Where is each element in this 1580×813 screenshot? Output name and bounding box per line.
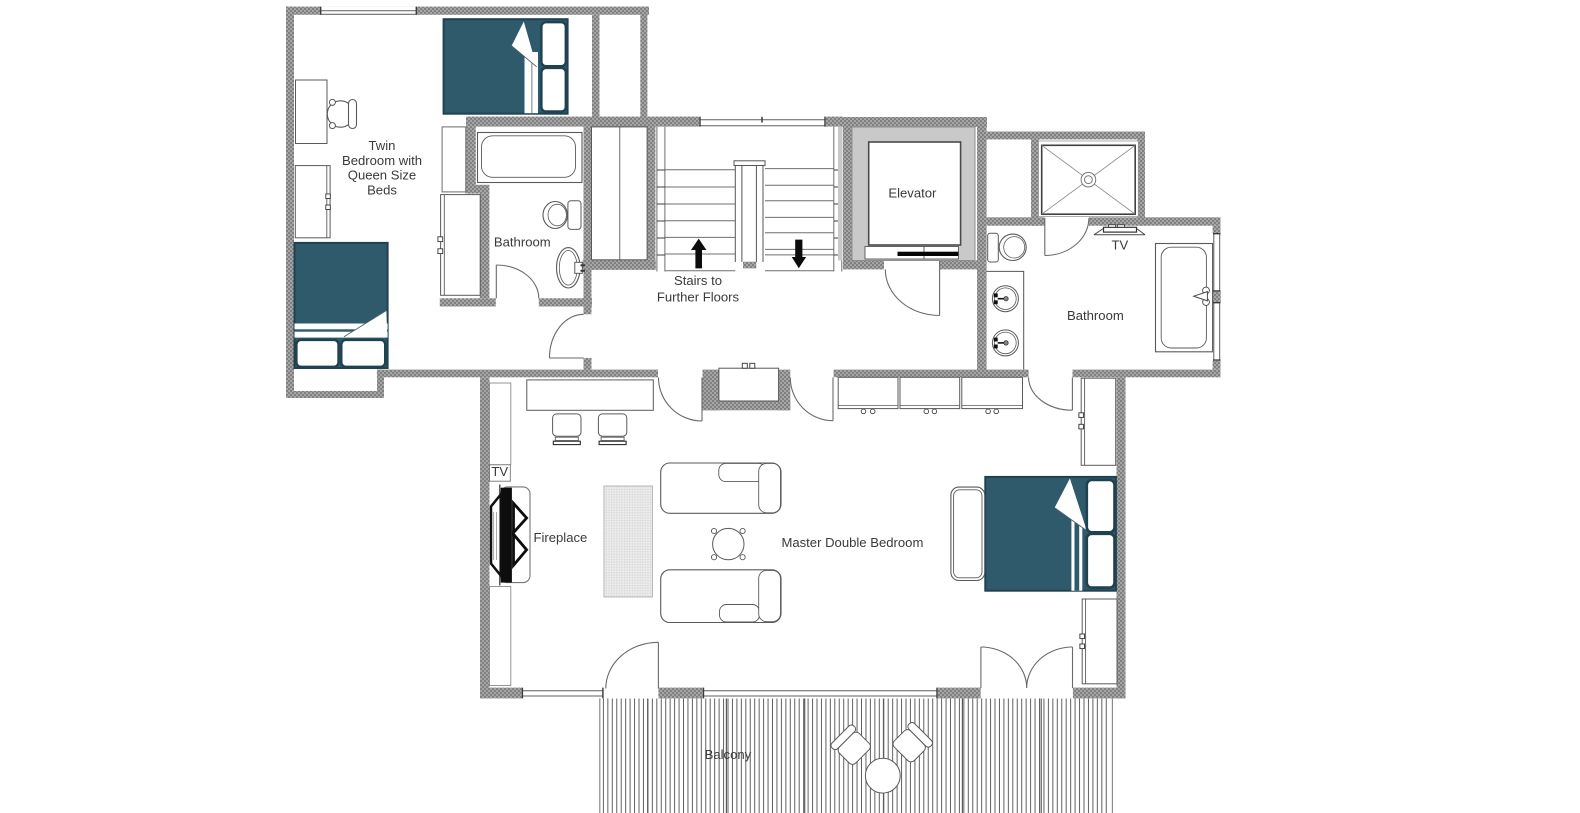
svg-text:Twin: Twin: [369, 138, 396, 153]
svg-text:Bedroom with: Bedroom with: [342, 153, 422, 168]
svg-text:Bathroom: Bathroom: [494, 234, 551, 249]
svg-text:TV: TV: [491, 464, 508, 479]
svg-text:Further Floors: Further Floors: [657, 289, 740, 304]
svg-text:Stairs to: Stairs to: [674, 273, 722, 288]
svg-text:Queen Size: Queen Size: [348, 168, 416, 183]
svg-text:Beds: Beds: [367, 182, 397, 197]
svg-text:Elevator: Elevator: [888, 186, 937, 201]
svg-text:Bathroom: Bathroom: [1067, 308, 1124, 323]
svg-text:Fireplace: Fireplace: [533, 530, 587, 545]
svg-text:TV: TV: [1112, 238, 1129, 253]
svg-text:Master Double Bedroom: Master Double Bedroom: [781, 535, 923, 550]
svg-text:Balcony: Balcony: [705, 747, 752, 762]
